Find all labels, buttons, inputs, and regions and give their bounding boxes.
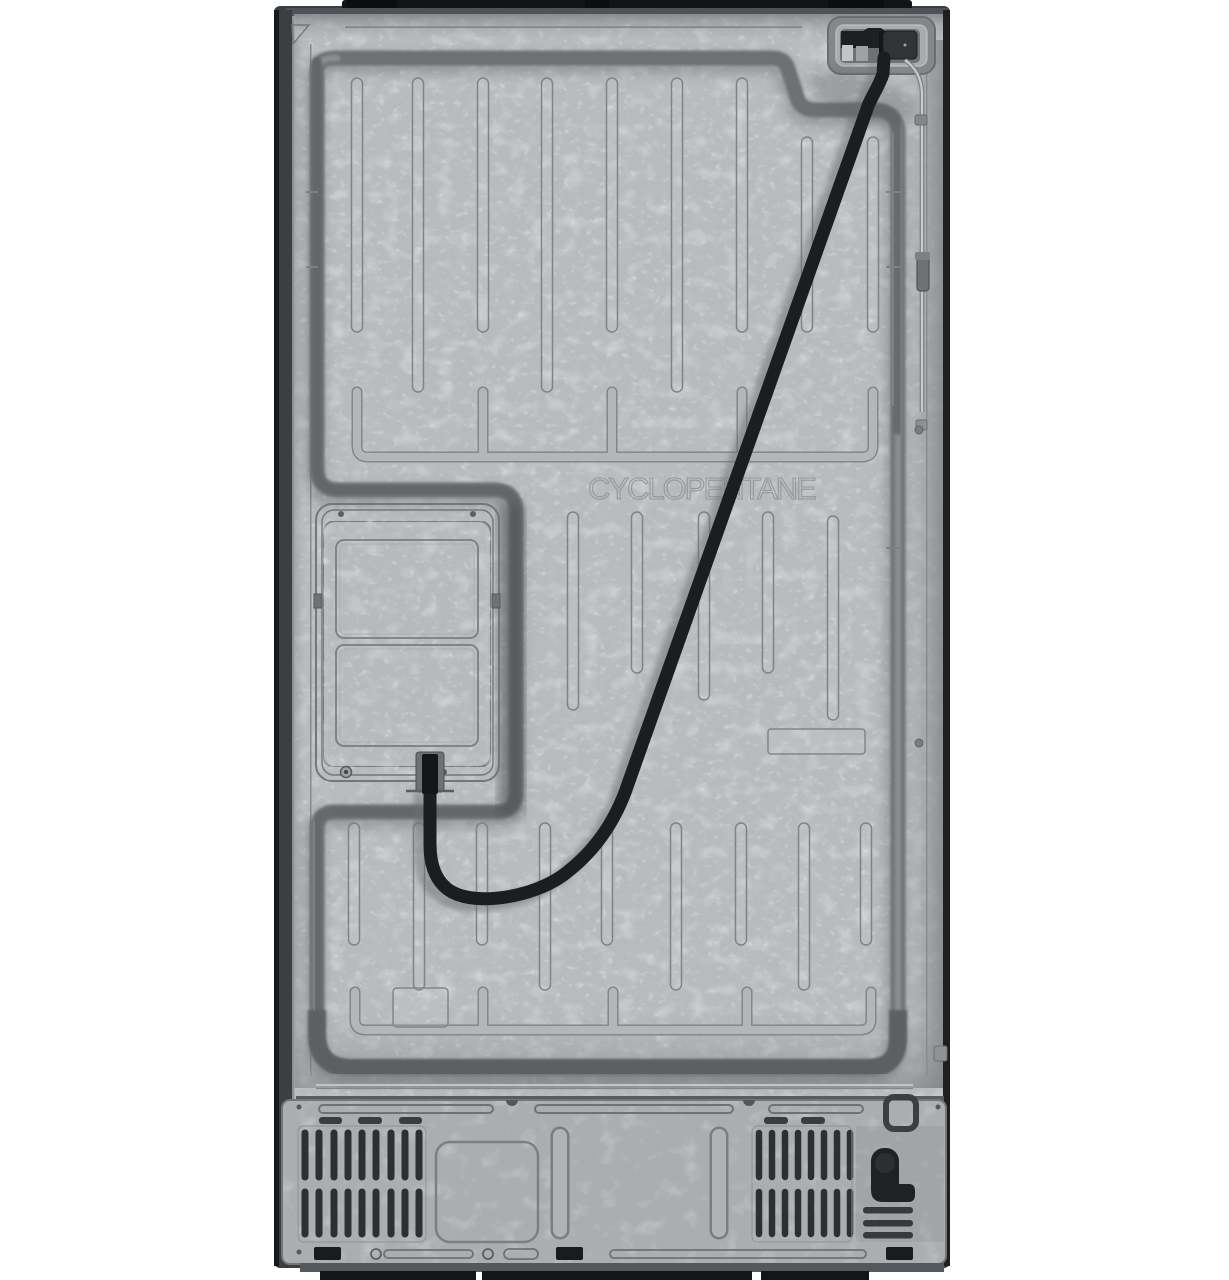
svg-text:CYCLOPENTANE: CYCLOPENTANE <box>588 471 819 506</box>
